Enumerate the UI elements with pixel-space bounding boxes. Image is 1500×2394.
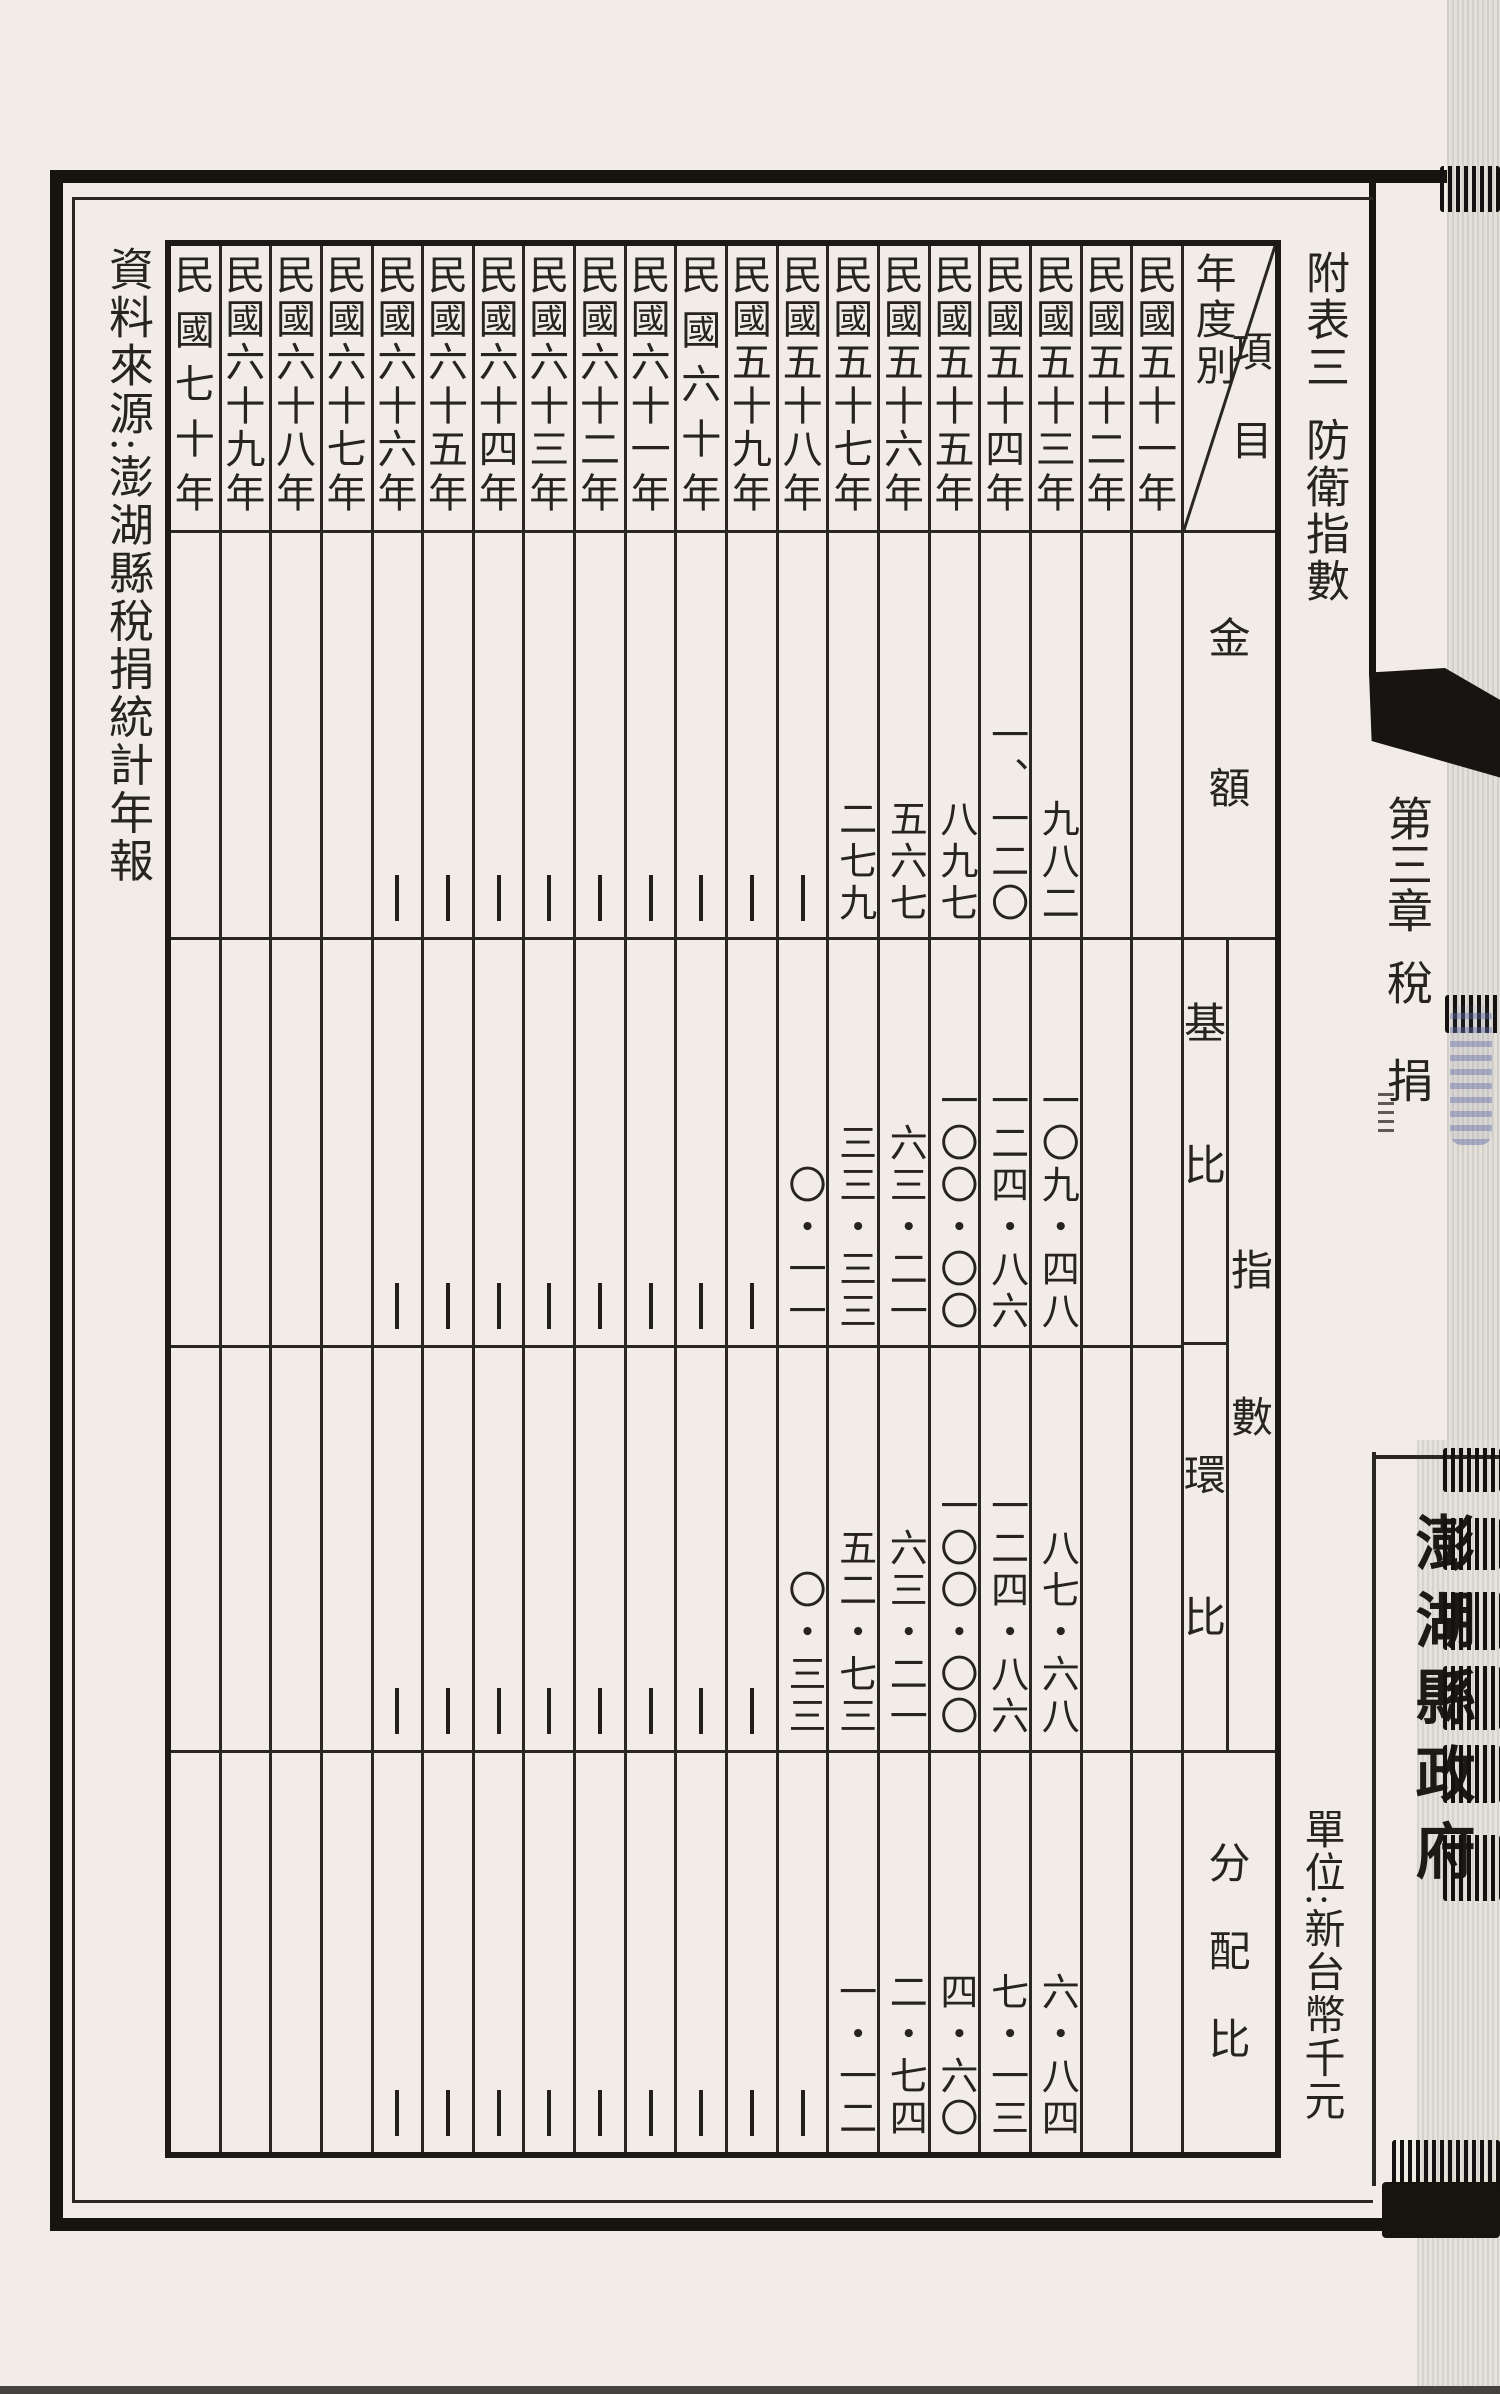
distribution-cell xyxy=(576,1750,624,2152)
distribution-cell xyxy=(1133,1750,1181,2152)
amount-cell: 五六七 xyxy=(880,530,928,937)
base-index-cell xyxy=(728,937,776,1345)
year-label: 民國六十七年 xyxy=(323,246,371,530)
year-label: 民國五十二年 xyxy=(1083,246,1131,530)
year-label: 民國五十五年 xyxy=(931,246,979,530)
amount-cell xyxy=(1133,530,1181,937)
year-column-52: 民國五十二年 xyxy=(1080,246,1131,2152)
year-column-61: 民國六十一年 xyxy=(624,246,675,2152)
base-ratio-label: 基比 xyxy=(1184,940,1226,1345)
amount-cell xyxy=(576,530,624,937)
distribution-cell xyxy=(424,1750,472,2152)
base-index-cell xyxy=(627,937,675,1345)
chain-ratio-label: 環比 xyxy=(1184,1345,1226,1750)
unit-note-text: 單位:新台幣千元 xyxy=(1300,1808,1341,2122)
statistics-table: 年度別 項目 金額 基比 環比 指數 分配比 民國五十一年 民國五十二年 民國五… xyxy=(165,240,1281,2158)
base-index-cell xyxy=(171,937,219,1345)
year-column-51: 民國五十一年 xyxy=(1130,246,1181,2152)
base-index-cell xyxy=(677,937,725,1345)
year-label: 民國六十年 xyxy=(677,246,725,530)
amount-cell xyxy=(323,530,371,937)
year-label: 民國六十五年 xyxy=(424,246,472,530)
year-column-66: 民國六十六年 xyxy=(371,246,422,2152)
chain-index-cell: 一〇〇・〇〇 xyxy=(931,1345,979,1750)
base-index-cell xyxy=(1083,937,1131,1345)
distribution-cell: 四・六〇 xyxy=(931,1750,979,2152)
index-sub-labels: 基比 環比 xyxy=(1184,940,1229,1750)
base-index-cell xyxy=(1133,937,1181,1345)
ink-smudge xyxy=(1450,1005,1492,1145)
year-column-56: 民國五十六年 五六七 六三・二一 六三・二一 二・七四 xyxy=(877,246,928,2152)
frame-border-left xyxy=(50,170,63,2231)
amount-cell xyxy=(728,530,776,937)
distribution-cell xyxy=(525,1750,573,2152)
year-label: 民國六十四年 xyxy=(475,246,523,530)
base-index-cell: 一〇九・四八 xyxy=(1032,937,1080,1345)
chain-index-cell xyxy=(576,1345,624,1750)
index-label: 指數 xyxy=(1229,940,1275,1750)
frame-border-right-segment xyxy=(1369,183,1376,676)
amount-cell xyxy=(1083,530,1131,937)
distribution-row-label: 分配比 xyxy=(1184,1750,1275,2152)
scan-edge xyxy=(0,2386,1500,2394)
frame-border-bottom xyxy=(50,2218,1390,2231)
year-label: 民國六十六年 xyxy=(374,246,422,530)
year-label: 民國六十八年 xyxy=(272,246,320,530)
chain-index-cell: 〇・三三 xyxy=(779,1345,827,1750)
frame-inner-line-left xyxy=(72,197,75,2203)
year-column-60: 民國六十年 xyxy=(674,246,725,2152)
distribution-cell: 七・一三 xyxy=(981,1750,1029,2152)
chain-index-cell xyxy=(475,1345,523,1750)
amount-row-label: 金額 xyxy=(1184,530,1275,937)
base-index-cell xyxy=(374,937,422,1345)
unit-note: 單位:新台幣千元 xyxy=(1300,1808,1341,2122)
chain-index-cell: 六三・二一 xyxy=(880,1345,928,1750)
binding-mark xyxy=(1440,166,1500,212)
year-label: 民國六十一年 xyxy=(627,246,675,530)
distribution-cell xyxy=(677,1750,725,2152)
binding-mark xyxy=(1443,1835,1500,1901)
frame-border-top xyxy=(50,170,1447,183)
source-note-text: 資料來源:澎湖縣稅捐統計年報 xyxy=(104,246,149,886)
base-index-cell: 一〇〇・〇〇 xyxy=(931,937,979,1345)
chain-index-cell xyxy=(1133,1345,1181,1750)
base-index-cell: 〇・一一 xyxy=(779,937,827,1345)
year-column-63: 民國六十三年 xyxy=(522,246,573,2152)
year-label: 民國五十一年 xyxy=(1133,246,1181,530)
year-column-62: 民國六十二年 xyxy=(573,246,624,2152)
distribution-cell: 二・七四 xyxy=(880,1750,928,2152)
year-label: 民國六十三年 xyxy=(525,246,573,530)
chain-index-cell xyxy=(374,1345,422,1750)
base-index-cell xyxy=(475,937,523,1345)
amount-cell xyxy=(272,530,320,937)
base-index-cell xyxy=(525,937,573,1345)
year-column-54: 民國五十四年 一、一二〇 一二四・八六 一二四・八六 七・一三 xyxy=(978,246,1029,2152)
year-label: 民國七十年 xyxy=(171,246,219,530)
year-label: 民國五十三年 xyxy=(1032,246,1080,530)
source-note: 資料來源:澎湖縣稅捐統計年報 xyxy=(104,246,149,886)
year-label: 民國五十七年 xyxy=(829,246,877,530)
chain-index-cell: 一二四・八六 xyxy=(981,1345,1029,1750)
amount-cell: 二七九 xyxy=(829,530,877,937)
chain-index-cell xyxy=(424,1345,472,1750)
amount-cell: 八九七 xyxy=(931,530,979,937)
binding-mark xyxy=(1443,1448,1500,1492)
table-title-text: 防衛指數 xyxy=(1301,417,1345,605)
distribution-cell xyxy=(374,1750,422,2152)
year-column-65: 民國六十五年 xyxy=(421,246,472,2152)
year-label: 民國六十二年 xyxy=(576,246,624,530)
distribution-cell xyxy=(728,1750,776,2152)
year-label: 民國六十九年 xyxy=(222,246,270,530)
year-column-57: 民國五十七年 二七九 三三・三三 五二・七三 一・一二 xyxy=(826,246,877,2152)
year-label: 民國五十九年 xyxy=(728,246,776,530)
distribution-cell xyxy=(222,1750,270,2152)
year-column-64: 民國六十四年 xyxy=(472,246,523,2152)
distribution-cell: 六・八四 xyxy=(1032,1750,1080,2152)
chain-index-cell xyxy=(323,1345,371,1750)
year-column-53: 民國五十三年 九八二 一〇九・四八 八七・六八 六・八四 xyxy=(1029,246,1080,2152)
amount-cell xyxy=(627,530,675,937)
index-row-group: 基比 環比 指數 xyxy=(1184,937,1275,1750)
chain-index-cell xyxy=(272,1345,320,1750)
year-label: 民國五十四年 xyxy=(981,246,1029,530)
frame-inner-line-bottom xyxy=(72,2200,1373,2203)
year-column-70: 民國七十年 xyxy=(171,246,219,2152)
year-column-55: 民國五十五年 八九七 一〇〇・〇〇 一〇〇・〇〇 四・六〇 xyxy=(928,246,979,2152)
amount-cell: 一、一二〇 xyxy=(981,530,1029,937)
distribution-cell: 一・一二 xyxy=(829,1750,877,2152)
amount-cell xyxy=(222,530,270,937)
binding-mark xyxy=(1443,1745,1500,1803)
table-title: 附表三 防衛指數 xyxy=(1301,250,1345,605)
chain-index-cell xyxy=(728,1345,776,1750)
base-index-cell xyxy=(323,937,371,1345)
amount-cell xyxy=(525,530,573,937)
base-index-cell xyxy=(272,937,320,1345)
distribution-cell xyxy=(171,1750,219,2152)
year-label: 民國五十六年 xyxy=(880,246,928,530)
corner-cols-label: 項目 xyxy=(1227,330,1268,508)
chain-index-cell xyxy=(627,1345,675,1750)
amount-cell xyxy=(374,530,422,937)
amount-cell xyxy=(779,530,827,937)
chapter-number-text: 第三章 xyxy=(1383,795,1429,933)
distribution-cell xyxy=(779,1750,827,2152)
frame-inner-line-top xyxy=(72,197,1373,200)
distribution-cell xyxy=(627,1750,675,2152)
header-column: 年度別 項目 金額 基比 環比 指數 分配比 xyxy=(1181,246,1275,2152)
binding-shadow xyxy=(1382,2182,1500,2238)
amount-cell xyxy=(424,530,472,937)
stray-mark xyxy=(1378,1090,1394,1132)
margin-vertical-rule xyxy=(1372,1452,1376,2186)
amount-cell: 九八二 xyxy=(1032,530,1080,937)
distribution-cell xyxy=(272,1750,320,2152)
year-column-59: 民國五十九年 xyxy=(725,246,776,2152)
year-column-58: 民國五十八年 〇・一一 〇・三三 xyxy=(776,246,827,2152)
binding-mark xyxy=(1443,1518,1500,1570)
base-index-cell: 一二四・八六 xyxy=(981,937,1029,1345)
amount-cell xyxy=(475,530,523,937)
corner-cell: 年度別 項目 xyxy=(1184,246,1275,530)
distribution-cell xyxy=(1083,1750,1131,2152)
chain-index-cell xyxy=(222,1345,270,1750)
year-label: 民國五十八年 xyxy=(779,246,827,530)
base-index-cell xyxy=(576,937,624,1345)
binding-mark xyxy=(1443,1592,1500,1650)
base-index-cell: 六三・二一 xyxy=(880,937,928,1345)
amount-cell xyxy=(171,530,219,937)
amount-cell xyxy=(677,530,725,937)
chain-index-cell xyxy=(1083,1345,1131,1750)
year-column-69: 民國六十九年 xyxy=(219,246,270,2152)
base-index-cell: 三三・三三 xyxy=(829,937,877,1345)
chain-index-cell xyxy=(171,1345,219,1750)
base-index-cell xyxy=(222,937,270,1345)
distribution-cell xyxy=(323,1750,371,2152)
year-column-68: 民國六十八年 xyxy=(269,246,320,2152)
base-index-cell xyxy=(424,937,472,1345)
chain-index-cell: 五二・七三 xyxy=(829,1345,877,1750)
chain-index-cell xyxy=(677,1345,725,1750)
distribution-cell xyxy=(475,1750,523,2152)
binding-mark xyxy=(1443,1666,1500,1730)
table-number-text: 附表三 xyxy=(1301,250,1345,391)
chain-index-cell: 八七・六八 xyxy=(1032,1345,1080,1750)
chain-index-cell xyxy=(525,1345,573,1750)
year-column-67: 民國六十七年 xyxy=(320,246,371,2152)
